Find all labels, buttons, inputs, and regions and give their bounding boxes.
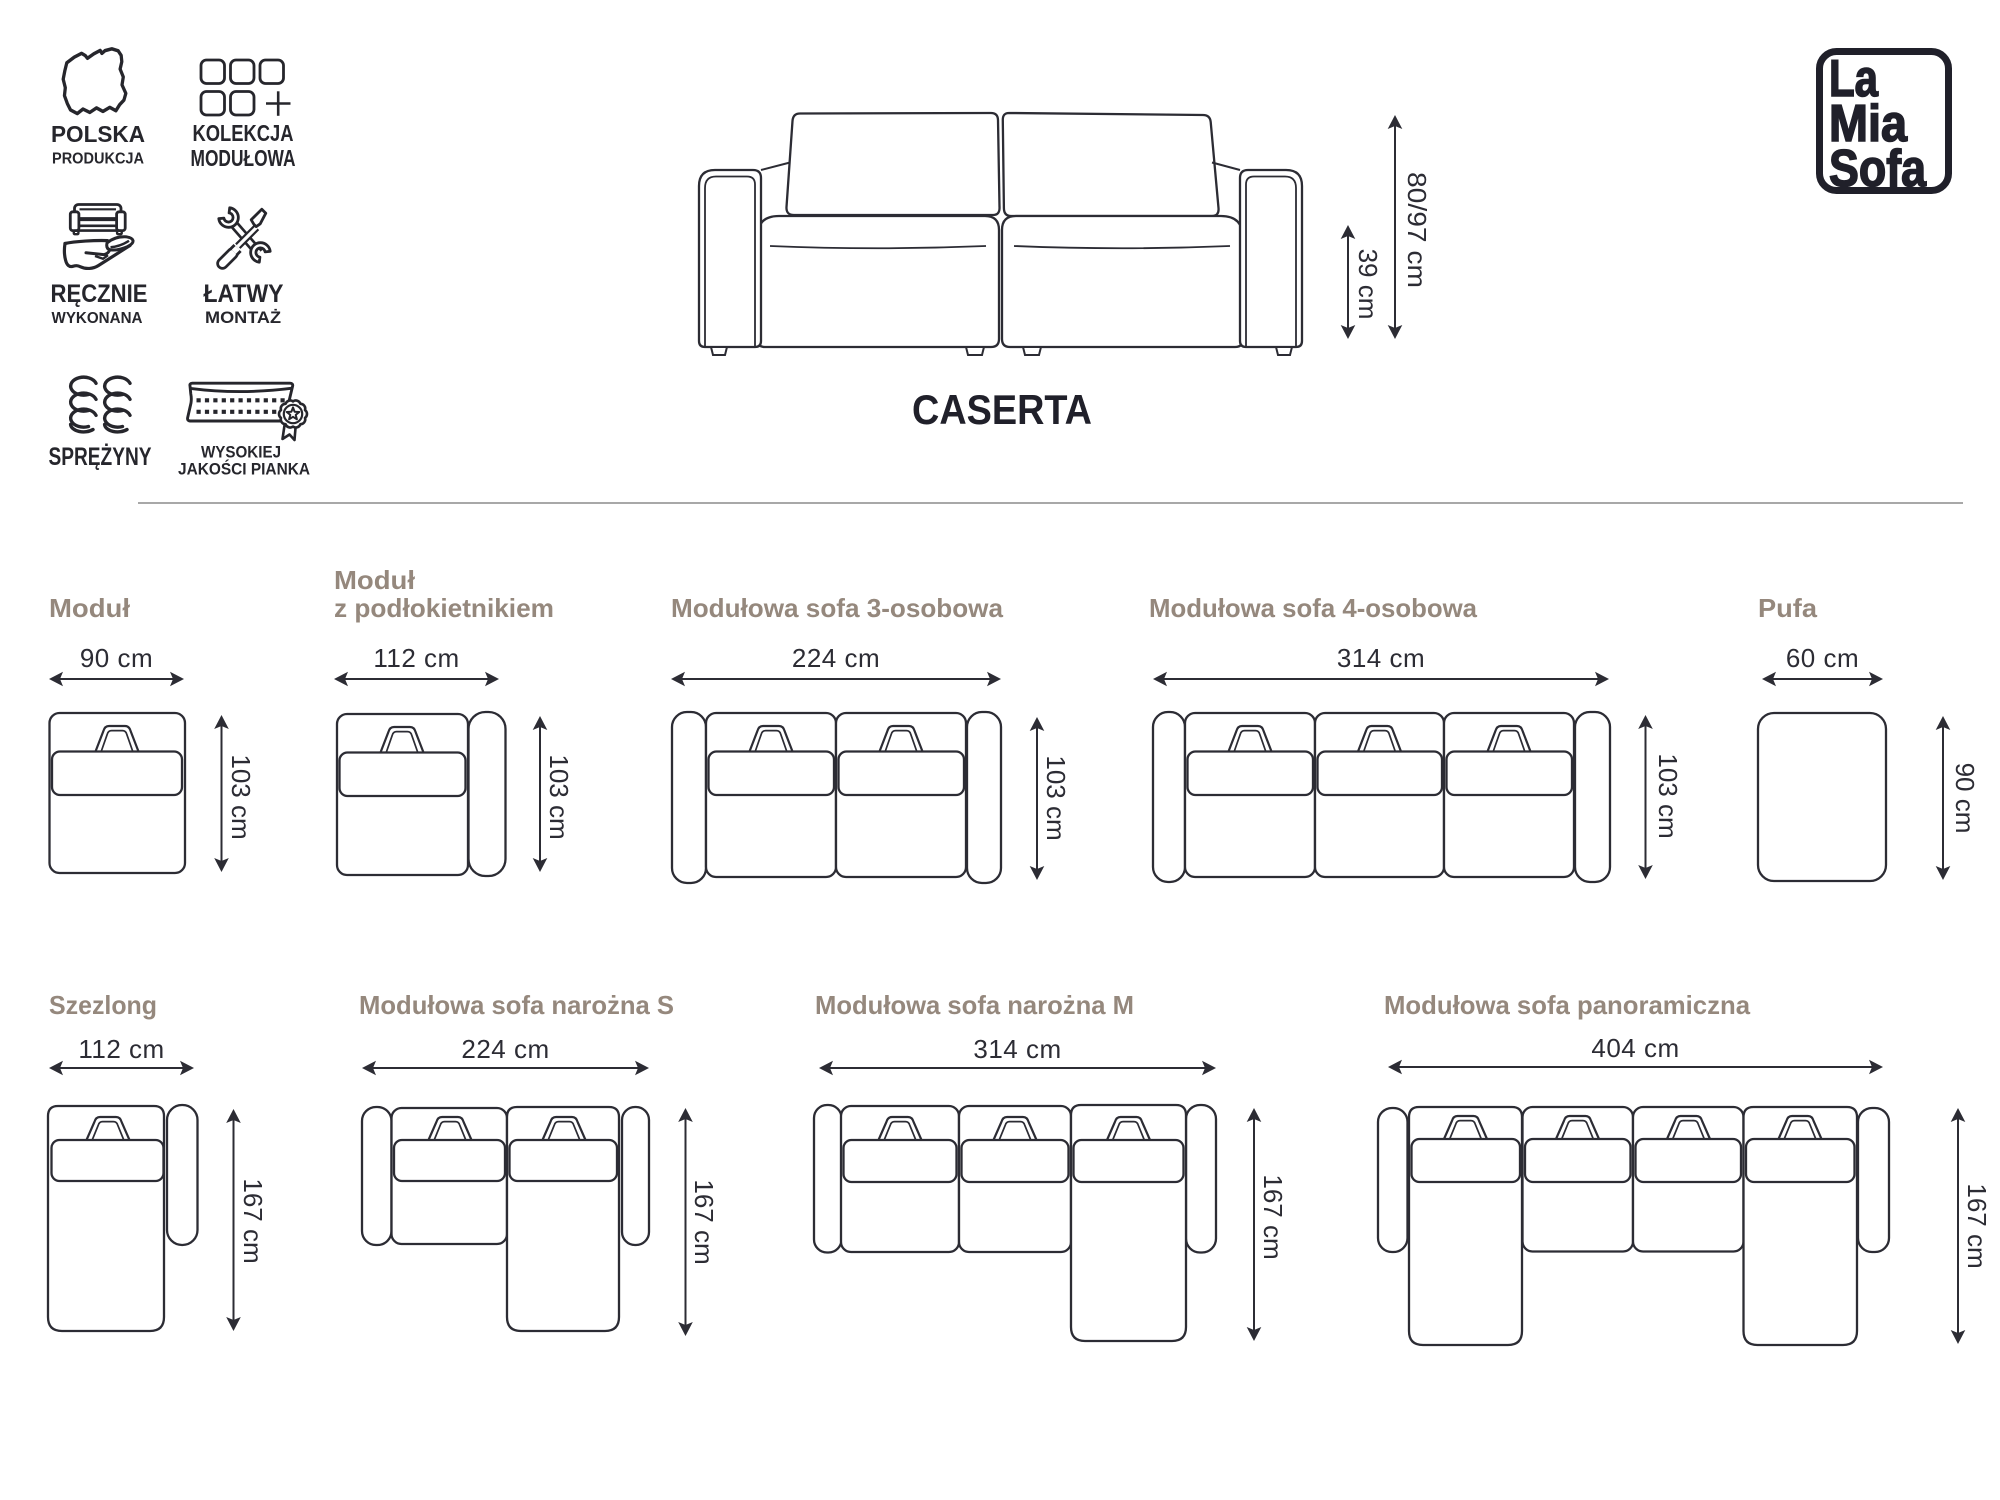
svg-text:224 cm: 224 cm [461,1034,549,1064]
svg-text:404 cm: 404 cm [1591,1033,1679,1063]
svg-text:Pufa: Pufa [1758,593,1818,623]
svg-text:z podłokietnikiem: z podłokietnikiem [334,593,554,623]
svg-text:112 cm: 112 cm [78,1034,164,1064]
svg-text:103 cm: 103 cm [1041,755,1071,840]
svg-text:ŁATWY: ŁATWY [204,280,284,308]
svg-text:103 cm: 103 cm [544,754,574,839]
svg-text:WYKONANA: WYKONANA [52,310,143,327]
svg-text:Modułowa sofa 4-osobowa: Modułowa sofa 4-osobowa [1149,593,1478,623]
svg-text:Modułowa sofa 3-osobowa: Modułowa sofa 3-osobowa [671,593,1004,623]
svg-text:PRODUKCJA: PRODUKCJA [52,151,144,168]
svg-text:Modułowa sofa narożna S: Modułowa sofa narożna S [359,990,674,1020]
svg-text:Moduł: Moduł [334,565,416,595]
svg-text:MONTAŻ: MONTAŻ [205,309,281,327]
svg-text:SPRĘŻYNY: SPRĘŻYNY [49,443,152,471]
svg-text:314 cm: 314 cm [1337,643,1425,673]
svg-text:167 cm: 167 cm [1962,1183,1992,1268]
svg-text:Modułowa sofa panoramiczna: Modułowa sofa panoramiczna [1384,990,1751,1020]
svg-text:JAKOŚCI PIANKA: JAKOŚCI PIANKA [178,460,310,479]
svg-text:224 cm: 224 cm [792,643,880,673]
svg-text:60 cm: 60 cm [1786,643,1859,673]
svg-text:POLSKA: POLSKA [51,121,145,147]
svg-text:Moduł: Moduł [49,593,131,623]
svg-text:167 cm: 167 cm [1258,1174,1288,1259]
svg-text:103 cm: 103 cm [226,754,256,839]
svg-text:80/97 cm: 80/97 cm [1402,172,1432,288]
svg-text:WYSOKIEJ: WYSOKIEJ [201,444,281,462]
svg-text:Szezlong: Szezlong [49,990,157,1020]
svg-text:167 cm: 167 cm [238,1178,268,1263]
svg-text:167 cm: 167 cm [689,1179,719,1264]
svg-text:112 cm: 112 cm [373,643,459,673]
svg-text:RĘCZNIE: RĘCZNIE [51,280,148,308]
svg-text:CASERTA: CASERTA [912,386,1092,433]
svg-text:103 cm: 103 cm [1653,753,1683,838]
svg-text:39 cm: 39 cm [1353,249,1383,320]
svg-text:90 cm: 90 cm [80,643,153,673]
svg-text:MODUŁOWA: MODUŁOWA [191,145,296,171]
svg-text:Modułowa sofa narożna M: Modułowa sofa narożna M [815,990,1134,1020]
svg-text:90 cm: 90 cm [1950,763,1980,834]
svg-text:314 cm: 314 cm [973,1034,1061,1064]
svg-text:Sofa: Sofa [1829,140,1927,198]
svg-text:KOLEKCJA: KOLEKCJA [193,120,294,146]
